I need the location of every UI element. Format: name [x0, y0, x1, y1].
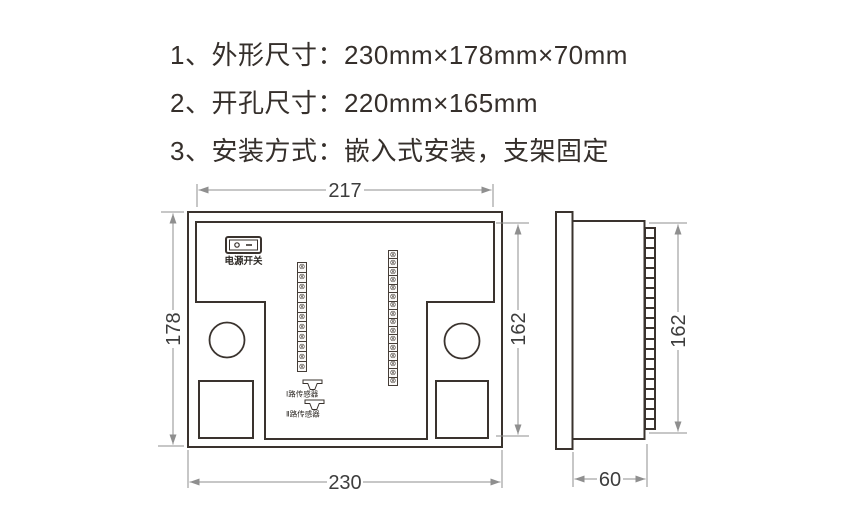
- terminal-screw-icon: ⊗: [299, 343, 306, 351]
- rear-opening-right: [436, 381, 488, 438]
- rear-opening-left: [199, 381, 253, 438]
- side-dimension-lines: [573, 223, 687, 487]
- power-switch-rocker: [230, 240, 258, 250]
- sensor-2-label: Ⅱ路传感器: [286, 409, 320, 419]
- mounting-hole-left: [210, 323, 245, 358]
- terminal-screw-icon: ⊗: [299, 333, 306, 341]
- power-switch-body: [226, 237, 261, 253]
- dim-label-right-height: 162: [508, 312, 530, 345]
- terminal-strip-left: ⊗ ⊗ ⊗ ⊗ ⊗ ⊗ ⊗ ⊗ ⊗ ⊗ ⊗: [297, 262, 307, 372]
- terminal-screw-icon: ⊗: [299, 273, 306, 281]
- terminal-screw-icon: ⊗: [299, 353, 306, 361]
- side-body: [573, 221, 645, 439]
- terminal-screw-icon: ⊗: [299, 303, 306, 311]
- rear-dimension-lines: [158, 184, 529, 488]
- terminal-screw-icon: ⊗: [299, 293, 306, 301]
- terminal-screw-icon: ⊗: [299, 263, 306, 271]
- terminal-cell: ⊗: [388, 377, 398, 386]
- terminal-screw-icon: ⊗: [390, 377, 397, 385]
- rear-view: [188, 212, 502, 447]
- terminal-screw-icon: ⊗: [299, 313, 306, 321]
- sensor-1-label: Ⅰ路传感器: [286, 389, 319, 399]
- power-off-symbol-icon: [235, 243, 239, 247]
- terminal-cell: ⊗: [297, 361, 307, 372]
- terminal-screw-icon: ⊗: [299, 283, 306, 291]
- terminal-screw-icon: ⊗: [299, 363, 306, 371]
- dim-label-top-width: 217: [328, 180, 361, 202]
- power-switch: [226, 237, 261, 253]
- power-switch-label: 电源开关: [224, 255, 263, 267]
- dim-label-bottom-width: 230: [328, 472, 361, 494]
- installation-dimension-page: 1、外形尺寸：230mm×178mm×70mm 2、开孔尺寸：220mm×165…: [0, 0, 847, 525]
- dim-label-side-depth: 60: [599, 469, 621, 491]
- terminal-strip-side: [644, 227, 656, 430]
- side-front-bezel: [556, 212, 573, 449]
- terminal-block: [644, 418, 656, 430]
- terminal-strip-right: ⊗ ⊗ ⊗ ⊗ ⊗ ⊗ ⊗ ⊗ ⊗ ⊗ ⊗ ⊗ ⊗ ⊗ ⊗ ⊗: [388, 250, 398, 386]
- technical-drawing: 217 178 162 230 162 60 电源开关 Ⅰ路传感器 Ⅱ路传感器: [0, 0, 847, 525]
- sensor-2-plug-icon: [305, 400, 324, 410]
- dim-label-side-height: 162: [668, 314, 690, 347]
- terminal-screw-icon: ⊗: [299, 323, 306, 331]
- sensor-1-plug-icon: [303, 380, 322, 390]
- dim-label-left-height: 178: [163, 312, 185, 345]
- side-view: [556, 212, 645, 449]
- rear-outer-outline: [188, 212, 502, 447]
- mounting-hole-right: [445, 324, 480, 359]
